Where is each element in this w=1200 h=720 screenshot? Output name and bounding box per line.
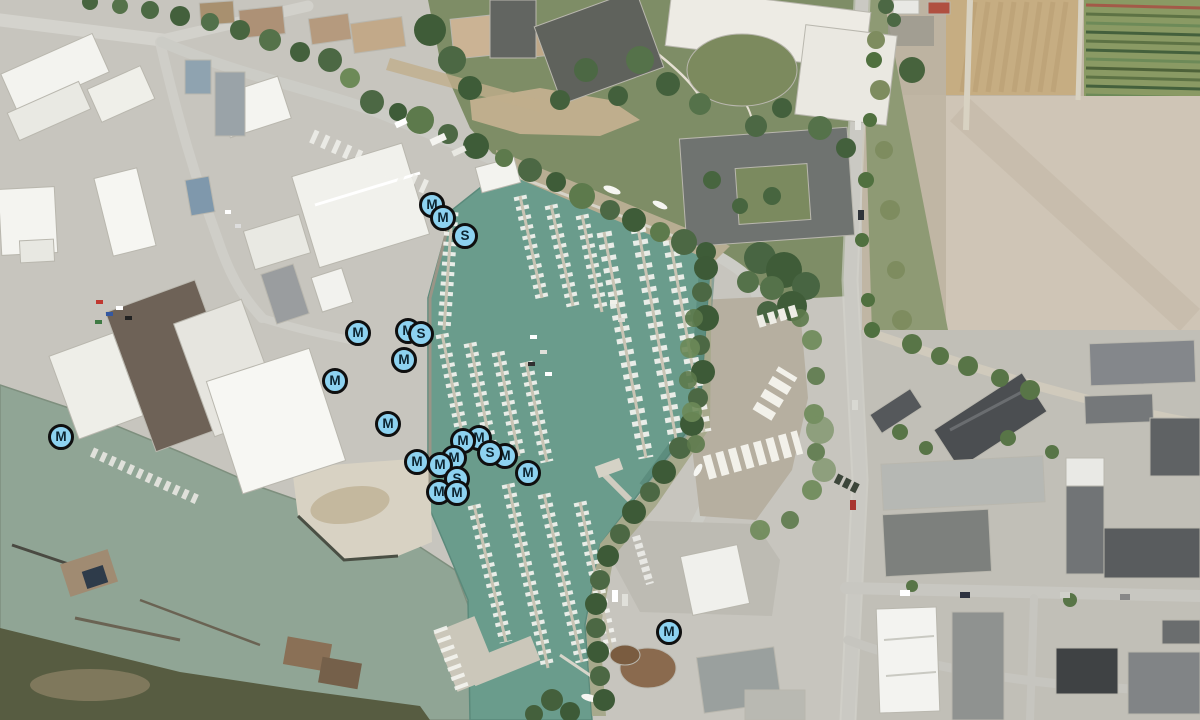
map-marker-m-3[interactable]: M xyxy=(345,320,371,346)
map-marker-m-8[interactable]: M xyxy=(48,424,74,450)
map-marker-m-7[interactable]: M xyxy=(322,368,348,394)
map-marker-s-5[interactable]: S xyxy=(408,321,434,347)
map-marker-s-2[interactable]: S xyxy=(452,223,478,249)
map-marker-m-21[interactable]: M xyxy=(656,619,682,645)
map-marker-m-14[interactable]: M xyxy=(515,460,541,486)
map-marker-m-20[interactable]: M xyxy=(444,480,470,506)
map-viewport[interactable]: MMSMMSMMMMMMMSMMMMSMMM xyxy=(0,0,1200,720)
map-marker-m-6[interactable]: M xyxy=(391,347,417,373)
map-marker-s-13[interactable]: S xyxy=(477,440,503,466)
map-marker-m-17[interactable]: M xyxy=(404,449,430,475)
map-marker-m-9[interactable]: M xyxy=(375,411,401,437)
map-marker-m-1[interactable]: M xyxy=(430,205,456,231)
marker-layer: MMSMMSMMMMMMMSMMMMSMMM xyxy=(0,0,1200,720)
